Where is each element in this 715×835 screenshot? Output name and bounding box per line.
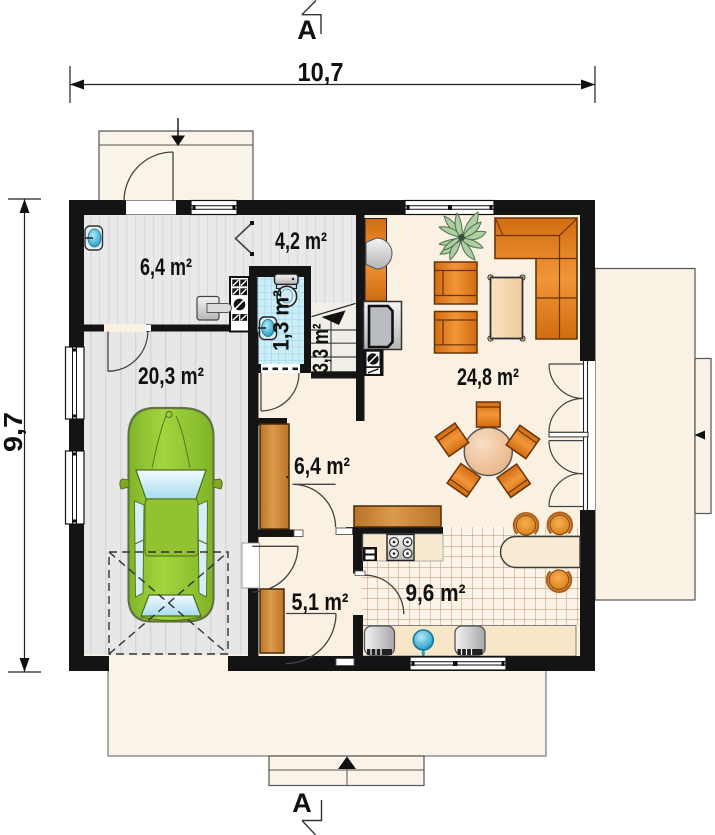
svg-text:9,6 m²: 9,6 m²	[406, 580, 466, 607]
svg-text:4,2 m²: 4,2 m²	[275, 228, 327, 255]
svg-text:10,7: 10,7	[298, 57, 344, 87]
svg-text:5,1 m²: 5,1 m²	[292, 589, 349, 616]
svg-text:9,7: 9,7	[0, 412, 28, 452]
svg-text:A: A	[297, 15, 317, 45]
svg-text:3,3 m²: 3,3 m²	[308, 324, 333, 373]
svg-text:6,4 m²: 6,4 m²	[294, 453, 350, 480]
svg-text:1,3 m²: 1,3 m²	[269, 290, 294, 351]
svg-text:6,4 m²: 6,4 m²	[140, 254, 192, 281]
svg-text:A: A	[292, 788, 312, 818]
svg-text:24,8 m²: 24,8 m²	[457, 364, 519, 391]
svg-text:20,3 m²: 20,3 m²	[138, 363, 204, 390]
